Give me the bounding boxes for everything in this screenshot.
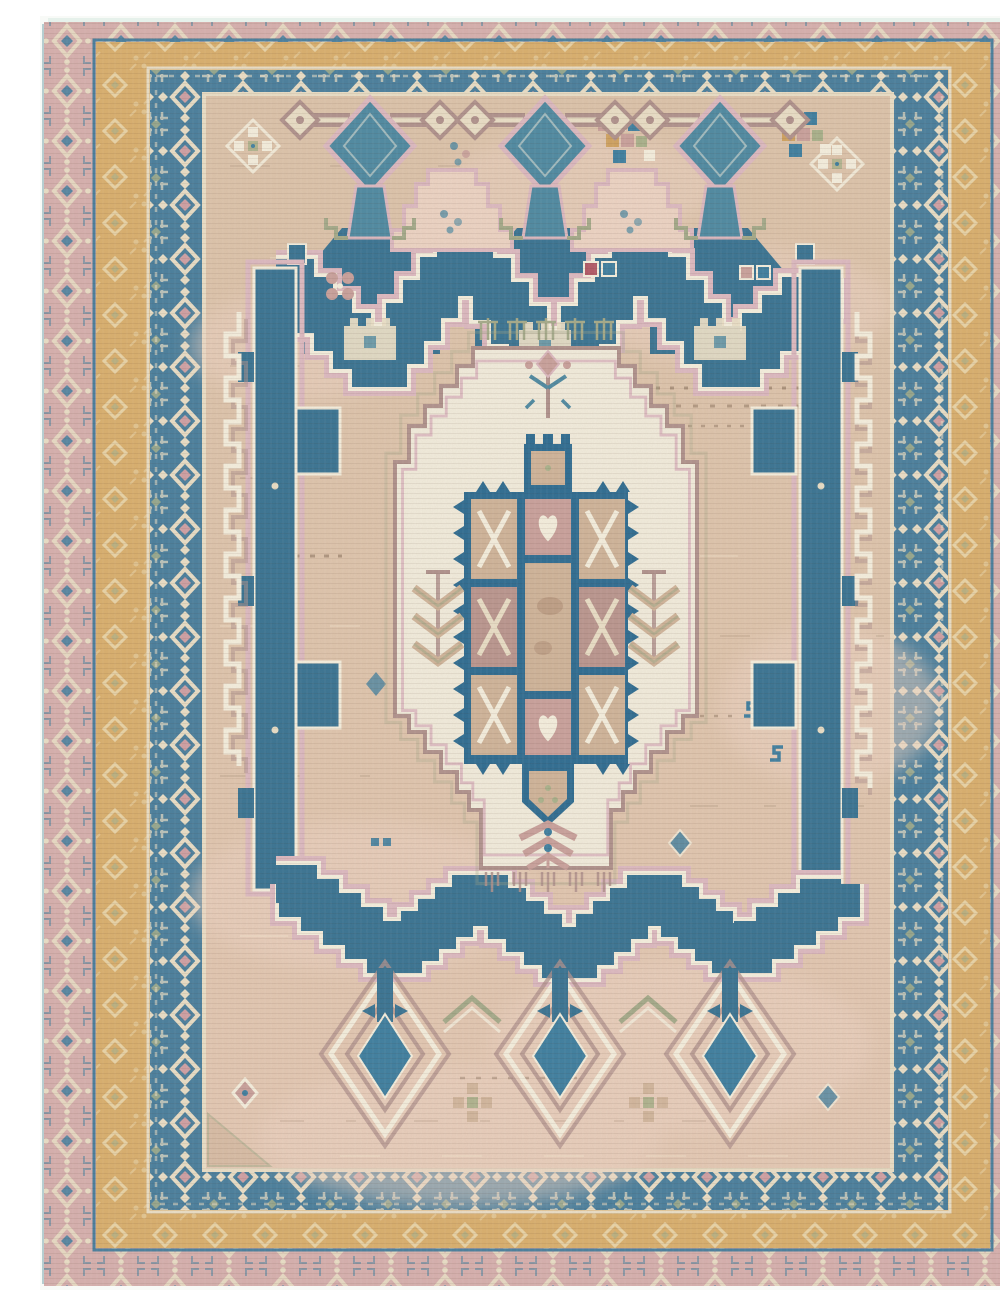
grain-texture	[44, 22, 1000, 1286]
rug-vector	[40, 16, 1000, 1290]
rug-photo	[40, 16, 1000, 1290]
